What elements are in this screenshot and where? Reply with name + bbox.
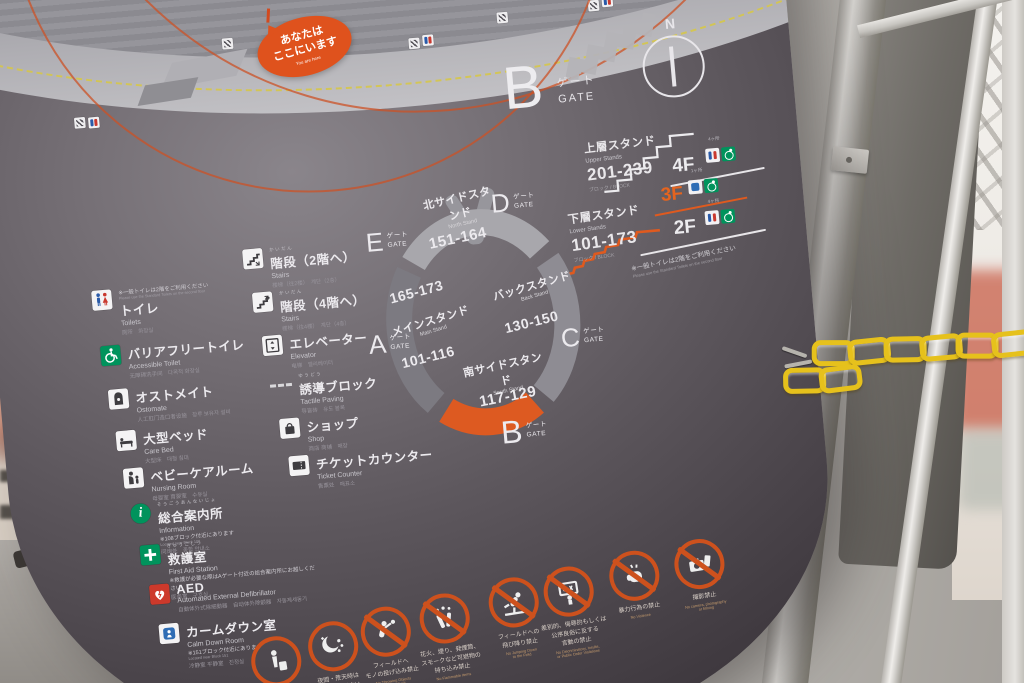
gate-b-letter: B (499, 413, 523, 452)
photo-of-stadium-sign: あなたは ここにいます You are here B ゲート GATE N 上層… (0, 0, 1024, 683)
gate-letter: B (500, 51, 548, 123)
gate-d: D ゲートGATE (490, 185, 537, 220)
tactile-paving-icon (270, 383, 295, 420)
gate-word-en: GATE (584, 335, 606, 345)
gate-word-en: GATE (514, 200, 536, 210)
floor-4f-count: 4ヶ所 (708, 136, 720, 143)
stairs-down-icon (242, 248, 264, 270)
floor-4f-label: 4F (672, 154, 696, 178)
gate-b: B ゲートGATE (499, 411, 549, 452)
nursing-room-icon (123, 467, 145, 489)
pipe-clamp (831, 146, 869, 174)
floor-4f-icons (705, 144, 738, 165)
floor-2f-count: 4ヶ所 (707, 198, 719, 205)
sign-board: あなたは ここにいます You are here B ゲート GATE N 上層… (0, 0, 849, 683)
gate-word-en: GATE (558, 89, 598, 108)
ostomate-icon (108, 388, 130, 410)
toilet-icon (91, 289, 113, 311)
no-photography-icon (671, 535, 728, 592)
chain-hook (782, 346, 808, 358)
toilet-icon (704, 210, 719, 225)
calm-down-icon (688, 179, 703, 194)
gate-d-letter: D (490, 187, 511, 220)
accessible-icon (720, 208, 735, 223)
no-discrimination-icon (540, 563, 597, 620)
toilet-icon (705, 148, 720, 163)
care-bed-icon (115, 430, 137, 452)
calm-down-room-icon (158, 623, 180, 645)
accessible-toilet-icon (100, 345, 122, 367)
accessible-icon (704, 178, 719, 193)
no-flammables-icon (416, 590, 473, 647)
gate-c-letter: C (560, 322, 581, 355)
gate-word-en: GATE (526, 429, 548, 439)
elevator-icon (262, 335, 284, 357)
gate-c: C ゲートGATE (560, 319, 607, 354)
floor-2f-icons (704, 206, 737, 227)
ticket-counter-icon (288, 455, 310, 477)
floor-2f-label: 2F (673, 216, 697, 240)
compass: N (637, 13, 708, 100)
compass-north-label: N (664, 15, 675, 32)
compass-icon (640, 33, 707, 100)
gate-heading: B ゲート GATE (500, 46, 599, 123)
shop-icon (279, 417, 301, 439)
first-aid-icon (139, 544, 161, 566)
stairs-up-icon (252, 291, 274, 313)
aed-icon (149, 583, 171, 605)
information-icon: i (130, 503, 152, 525)
rule-no-photography: 撮影禁止 No camera, photography or filming (657, 533, 745, 616)
floor-3f-icons (688, 176, 721, 197)
floor-3f-count: 1ヶ所 (691, 167, 703, 174)
no-violence-icon (606, 547, 663, 604)
accessible-icon (721, 146, 736, 161)
